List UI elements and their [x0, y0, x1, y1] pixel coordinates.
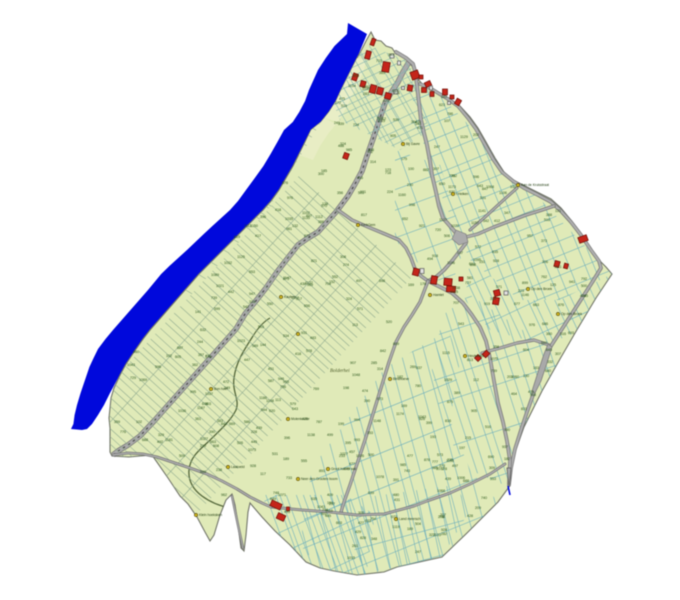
svg-text:Neer den Grooten boom: Neer den Grooten boom — [301, 477, 338, 481]
svg-text:314: 314 — [370, 160, 376, 164]
svg-text:247: 247 — [415, 550, 421, 554]
svg-text:1119: 1119 — [392, 525, 399, 529]
svg-text:792: 792 — [581, 277, 587, 281]
svg-text:427: 427 — [358, 521, 364, 525]
svg-text:102: 102 — [136, 420, 142, 424]
svg-text:1157: 1157 — [471, 221, 479, 225]
svg-text:308: 308 — [340, 255, 346, 259]
svg-text:519: 519 — [341, 104, 347, 108]
svg-text:976: 976 — [529, 323, 535, 327]
svg-text:739: 739 — [491, 369, 497, 373]
svg-text:993: 993 — [354, 438, 360, 442]
svg-text:780: 780 — [415, 384, 421, 388]
svg-text:495: 495 — [284, 510, 290, 514]
svg-text:306: 306 — [542, 260, 548, 264]
svg-text:1129: 1129 — [460, 135, 468, 139]
svg-text:1111: 1111 — [554, 265, 561, 269]
svg-text:506: 506 — [444, 234, 450, 238]
svg-text:169: 169 — [401, 404, 407, 408]
svg-text:Molenkouter: Molenkouter — [291, 417, 311, 421]
svg-text:623: 623 — [439, 103, 445, 107]
svg-text:882: 882 — [423, 168, 429, 172]
svg-text:762: 762 — [541, 275, 547, 279]
svg-text:813: 813 — [467, 358, 473, 362]
svg-text:1048: 1048 — [352, 373, 360, 377]
svg-text:842: 842 — [380, 349, 386, 353]
svg-text:905: 905 — [471, 409, 477, 413]
svg-text:404: 404 — [580, 294, 586, 298]
svg-text:152: 152 — [329, 280, 335, 284]
svg-text:282: 282 — [441, 532, 447, 536]
svg-text:873: 873 — [283, 277, 289, 281]
svg-text:189: 189 — [283, 457, 289, 461]
svg-text:995: 995 — [190, 390, 196, 394]
svg-text:981: 981 — [286, 227, 292, 231]
svg-text:457: 457 — [349, 450, 355, 454]
svg-text:1141: 1141 — [478, 209, 486, 213]
svg-text:244: 244 — [197, 340, 203, 344]
svg-text:112: 112 — [473, 378, 479, 382]
svg-text:1193: 1193 — [446, 459, 454, 463]
svg-text:937: 937 — [502, 445, 508, 449]
svg-text:418: 418 — [275, 208, 281, 212]
svg-text:652: 652 — [402, 217, 408, 221]
svg-text:947: 947 — [249, 292, 255, 296]
svg-text:985: 985 — [346, 148, 352, 152]
svg-text:544: 544 — [261, 408, 267, 412]
svg-text:Heulebeke: Heulebeke — [468, 354, 484, 358]
svg-text:1115: 1115 — [442, 351, 449, 355]
svg-text:314: 314 — [377, 367, 383, 371]
svg-text:477: 477 — [407, 454, 413, 458]
svg-text:739: 739 — [211, 296, 217, 300]
svg-text:769: 769 — [313, 387, 319, 391]
svg-text:285: 285 — [371, 361, 377, 365]
svg-text:Laakveld: Laakveld — [231, 465, 245, 469]
svg-text:182: 182 — [504, 457, 510, 461]
svg-text:178: 178 — [420, 282, 426, 286]
svg-text:509: 509 — [179, 454, 185, 458]
svg-text:1146: 1146 — [521, 293, 529, 297]
svg-text:Op den Broek: Op den Broek — [561, 312, 582, 316]
svg-text:816: 816 — [445, 419, 451, 423]
svg-text:Klein hoeksken: Klein hoeksken — [199, 513, 222, 517]
svg-text:202: 202 — [473, 133, 479, 137]
svg-text:1174: 1174 — [396, 412, 404, 416]
svg-text:357: 357 — [198, 353, 204, 357]
svg-text:1111: 1111 — [244, 224, 251, 228]
svg-text:138: 138 — [322, 202, 328, 206]
svg-text:994: 994 — [354, 418, 360, 422]
svg-text:1160: 1160 — [398, 193, 406, 197]
svg-text:1075: 1075 — [490, 357, 498, 361]
svg-text:373: 373 — [541, 239, 547, 243]
svg-text:324: 324 — [346, 297, 352, 301]
svg-text:1073: 1073 — [248, 448, 256, 452]
svg-text:534: 534 — [283, 334, 289, 338]
svg-text:207: 207 — [440, 513, 446, 517]
svg-text:875: 875 — [447, 400, 453, 404]
svg-text:581: 581 — [467, 276, 473, 280]
svg-text:571: 571 — [357, 307, 363, 311]
svg-text:471: 471 — [417, 126, 423, 130]
svg-text:1043: 1043 — [418, 415, 426, 419]
svg-text:199: 199 — [338, 422, 344, 426]
svg-text:474: 474 — [362, 389, 368, 393]
svg-text:102: 102 — [166, 354, 172, 358]
svg-text:891: 891 — [319, 469, 325, 473]
svg-text:1138: 1138 — [307, 433, 315, 437]
svg-text:740: 740 — [481, 496, 487, 500]
svg-text:113: 113 — [275, 398, 281, 402]
svg-text:1037: 1037 — [205, 392, 213, 396]
svg-text:733: 733 — [449, 174, 455, 178]
svg-text:1198: 1198 — [266, 399, 274, 403]
svg-text:673: 673 — [377, 397, 383, 401]
svg-text:141: 141 — [195, 310, 201, 314]
svg-text:Aan de Kruisstraat: Aan de Kruisstraat — [521, 183, 549, 187]
svg-text:998: 998 — [409, 203, 415, 207]
svg-text:1196: 1196 — [447, 261, 455, 265]
svg-text:356: 356 — [337, 191, 343, 195]
svg-text:359: 359 — [114, 420, 120, 424]
svg-text:107: 107 — [457, 251, 463, 255]
svg-text:608: 608 — [213, 444, 219, 448]
svg-text:464: 464 — [511, 392, 517, 396]
svg-text:488: 488 — [338, 144, 344, 148]
svg-text:663: 663 — [533, 303, 539, 307]
svg-text:1112: 1112 — [315, 215, 322, 219]
svg-text:1035: 1035 — [362, 87, 370, 91]
svg-text:307: 307 — [433, 167, 439, 171]
svg-text:Land meersch: Land meersch — [399, 517, 421, 521]
svg-text:1187: 1187 — [197, 406, 205, 410]
svg-text:100: 100 — [408, 167, 414, 171]
svg-text:887: 887 — [177, 346, 183, 350]
svg-text:539: 539 — [393, 118, 399, 122]
svg-text:428: 428 — [467, 514, 473, 518]
svg-text:1173: 1173 — [448, 185, 456, 189]
svg-text:t Heiken: t Heiken — [456, 192, 469, 196]
svg-text:360: 360 — [546, 332, 552, 336]
svg-text:329: 329 — [158, 433, 164, 437]
svg-text:1043: 1043 — [317, 505, 325, 509]
svg-text:390: 390 — [364, 399, 370, 403]
svg-text:396: 396 — [260, 215, 266, 219]
svg-text:690: 690 — [488, 455, 494, 459]
svg-text:720: 720 — [435, 228, 441, 232]
svg-text:144: 144 — [260, 343, 266, 347]
svg-text:632: 632 — [200, 328, 206, 332]
svg-text:543: 543 — [458, 322, 464, 326]
svg-text:1015: 1015 — [377, 119, 385, 123]
svg-text:727: 727 — [465, 281, 471, 285]
svg-text:472: 472 — [223, 380, 229, 384]
svg-text:274: 274 — [343, 263, 349, 267]
svg-text:1060: 1060 — [511, 375, 519, 379]
svg-text:1036: 1036 — [178, 409, 186, 413]
svg-text:228: 228 — [251, 430, 257, 434]
svg-text:169: 169 — [408, 283, 414, 287]
svg-text:485: 485 — [325, 514, 331, 518]
svg-text:399: 399 — [426, 421, 432, 425]
svg-text:515: 515 — [258, 325, 264, 329]
svg-text:317: 317 — [296, 297, 302, 301]
svg-text:113: 113 — [352, 323, 358, 327]
svg-text:121: 121 — [555, 209, 561, 213]
svg-text:447: 447 — [244, 358, 250, 362]
svg-text:941: 941 — [569, 280, 575, 284]
svg-text:497: 497 — [356, 279, 362, 283]
svg-text:130: 130 — [523, 374, 529, 378]
svg-text:Bolderhei: Bolderhei — [330, 369, 350, 374]
svg-text:653: 653 — [249, 270, 255, 274]
svg-text:1015: 1015 — [347, 556, 355, 560]
svg-text:395: 395 — [345, 441, 351, 445]
svg-text:729: 729 — [130, 376, 136, 380]
svg-text:439: 439 — [445, 477, 451, 481]
svg-text:903: 903 — [205, 402, 211, 406]
svg-text:660: 660 — [541, 341, 547, 345]
svg-text:835: 835 — [492, 250, 498, 254]
svg-text:431: 431 — [394, 498, 400, 502]
svg-text:603: 603 — [336, 521, 342, 525]
svg-text:531: 531 — [272, 452, 278, 456]
svg-text:418: 418 — [295, 352, 301, 356]
svg-text:198: 198 — [343, 386, 349, 390]
svg-text:955: 955 — [353, 74, 359, 78]
svg-text:656: 656 — [304, 304, 310, 308]
svg-text:163: 163 — [533, 366, 539, 370]
svg-text:475: 475 — [339, 97, 345, 101]
svg-text:707: 707 — [453, 301, 459, 305]
svg-text:985: 985 — [400, 463, 406, 467]
svg-text:1023: 1023 — [237, 339, 245, 343]
svg-text:223: 223 — [518, 289, 524, 293]
svg-text:197: 197 — [459, 446, 465, 450]
svg-text:516: 516 — [544, 218, 550, 222]
svg-text:787: 787 — [316, 420, 322, 424]
svg-text:322: 322 — [429, 533, 435, 537]
svg-text:1015: 1015 — [450, 290, 458, 294]
svg-text:1070: 1070 — [451, 224, 459, 228]
svg-text:342: 342 — [441, 95, 447, 99]
svg-text:599: 599 — [214, 307, 220, 311]
svg-text:553: 553 — [490, 477, 496, 481]
svg-text:905: 905 — [390, 134, 396, 138]
svg-text:680: 680 — [545, 369, 551, 373]
svg-text:1027: 1027 — [340, 452, 348, 456]
svg-text:686: 686 — [542, 322, 548, 326]
svg-text:957: 957 — [527, 234, 533, 238]
svg-text:KerkGem: KerkGem — [361, 223, 375, 227]
svg-text:869: 869 — [393, 342, 399, 346]
svg-text:230: 230 — [407, 183, 413, 187]
svg-text:902: 902 — [367, 150, 373, 154]
svg-text:777: 777 — [432, 460, 438, 464]
svg-text:639: 639 — [368, 491, 374, 495]
svg-text:576: 576 — [282, 181, 288, 185]
svg-text:688: 688 — [142, 438, 148, 442]
svg-text:724: 724 — [353, 123, 359, 127]
svg-text:1043: 1043 — [127, 363, 135, 367]
svg-text:1132: 1132 — [305, 281, 313, 285]
svg-text:572: 572 — [475, 245, 481, 249]
svg-text:650: 650 — [439, 182, 445, 186]
svg-text:396: 396 — [284, 436, 290, 440]
svg-text:297: 297 — [329, 502, 335, 506]
svg-text:176: 176 — [205, 355, 211, 359]
svg-text:871: 871 — [304, 234, 310, 238]
svg-text:555: 555 — [301, 459, 307, 463]
svg-text:1069: 1069 — [139, 378, 147, 382]
svg-text:499: 499 — [327, 433, 333, 437]
svg-text:Hamlet: Hamlet — [433, 293, 444, 297]
svg-text:786: 786 — [447, 112, 453, 116]
svg-text:210: 210 — [200, 444, 206, 448]
svg-text:117: 117 — [260, 472, 266, 476]
svg-text:342: 342 — [483, 219, 489, 223]
svg-text:845: 845 — [546, 348, 552, 352]
svg-text:756: 756 — [280, 385, 286, 389]
svg-text:247: 247 — [434, 145, 440, 149]
svg-text:928: 928 — [493, 259, 499, 263]
svg-text:1106: 1106 — [499, 191, 507, 195]
svg-text:261: 261 — [352, 544, 358, 548]
svg-text:300: 300 — [318, 172, 324, 176]
svg-text:1072: 1072 — [436, 467, 444, 471]
svg-text:175: 175 — [401, 157, 407, 161]
svg-text:339: 339 — [338, 122, 344, 126]
svg-text:1137: 1137 — [439, 218, 447, 222]
svg-text:899: 899 — [522, 281, 528, 285]
svg-text:1135: 1135 — [302, 216, 310, 220]
svg-text:Bon hoef: Bon hoef — [214, 387, 228, 391]
svg-text:314: 314 — [490, 297, 496, 301]
svg-text:876: 876 — [558, 303, 564, 307]
svg-text:960: 960 — [133, 350, 139, 354]
svg-text:568: 568 — [530, 393, 536, 397]
svg-text:847: 847 — [482, 187, 488, 191]
svg-text:503: 503 — [358, 191, 364, 195]
svg-text:586: 586 — [244, 420, 250, 424]
svg-text:610: 610 — [469, 262, 475, 266]
svg-text:542: 542 — [243, 305, 249, 309]
svg-text:390: 390 — [209, 430, 215, 434]
svg-text:209: 209 — [475, 506, 481, 510]
svg-text:698: 698 — [379, 279, 385, 283]
svg-text:Op den Broek: Op den Broek — [531, 287, 552, 291]
svg-text:347: 347 — [504, 211, 510, 215]
svg-text:442: 442 — [228, 290, 234, 294]
svg-text:492: 492 — [157, 440, 163, 444]
svg-text:309: 309 — [489, 466, 495, 470]
svg-text:663: 663 — [210, 440, 216, 444]
svg-text:132: 132 — [292, 224, 298, 228]
svg-text:500: 500 — [581, 284, 587, 288]
svg-text:343: 343 — [388, 53, 394, 57]
svg-text:1026: 1026 — [356, 454, 364, 458]
svg-text:305: 305 — [358, 511, 364, 515]
svg-text:633: 633 — [365, 519, 371, 523]
svg-text:931: 931 — [301, 331, 307, 335]
svg-text:103: 103 — [510, 185, 516, 189]
svg-text:571: 571 — [496, 285, 502, 289]
svg-text:748: 748 — [273, 491, 279, 495]
svg-text:907: 907 — [350, 361, 356, 365]
svg-text:817: 817 — [361, 213, 367, 217]
svg-text:520: 520 — [386, 320, 392, 324]
svg-text:483: 483 — [310, 336, 316, 340]
svg-text:718: 718 — [385, 171, 391, 175]
svg-text:189: 189 — [407, 527, 413, 531]
svg-text:409: 409 — [327, 493, 333, 497]
svg-text:504: 504 — [415, 522, 421, 526]
svg-text:715: 715 — [376, 59, 382, 63]
svg-text:620: 620 — [269, 409, 275, 413]
svg-text:477: 477 — [349, 462, 355, 466]
svg-text:821: 821 — [311, 259, 317, 263]
svg-text:348: 348 — [371, 537, 377, 541]
svg-text:955: 955 — [283, 380, 289, 384]
svg-text:849: 849 — [270, 497, 276, 501]
svg-text:550: 550 — [267, 302, 273, 306]
svg-text:1035: 1035 — [285, 217, 293, 221]
svg-text:828: 828 — [360, 536, 366, 540]
svg-text:215: 215 — [465, 436, 471, 440]
svg-text:332: 332 — [547, 360, 553, 364]
svg-text:Kauters: Kauters — [284, 295, 296, 299]
svg-text:358: 358 — [493, 345, 499, 349]
svg-text:976: 976 — [287, 196, 293, 200]
svg-text:552: 552 — [332, 275, 338, 279]
svg-text:318: 318 — [249, 300, 255, 304]
svg-text:1102: 1102 — [302, 211, 310, 215]
svg-text:531: 531 — [480, 196, 486, 200]
svg-text:688: 688 — [463, 479, 469, 483]
svg-text:844: 844 — [221, 422, 227, 426]
svg-text:Bij Gavre: Bij Gavre — [406, 142, 420, 146]
svg-text:1154: 1154 — [348, 84, 356, 88]
svg-text:721: 721 — [394, 91, 400, 95]
svg-text:412: 412 — [494, 219, 500, 223]
svg-text:1068: 1068 — [437, 489, 445, 493]
svg-text:629: 629 — [383, 99, 389, 103]
svg-text:573: 573 — [437, 453, 443, 457]
svg-text:389: 389 — [454, 391, 460, 395]
svg-text:388: 388 — [546, 213, 552, 217]
svg-text:1078: 1078 — [376, 475, 384, 479]
svg-text:224: 224 — [387, 190, 393, 194]
svg-text:677: 677 — [514, 302, 520, 306]
svg-text:962: 962 — [221, 493, 227, 497]
svg-text:589: 589 — [252, 344, 258, 348]
svg-text:587: 587 — [268, 379, 274, 383]
svg-text:990: 990 — [504, 428, 510, 432]
svg-text:919: 919 — [484, 302, 490, 306]
svg-text:366: 366 — [318, 220, 324, 224]
svg-text:193: 193 — [430, 435, 436, 439]
svg-text:928: 928 — [441, 528, 447, 532]
svg-text:928: 928 — [250, 464, 256, 468]
svg-text:516: 516 — [485, 425, 491, 429]
svg-text:1021: 1021 — [216, 284, 224, 288]
svg-text:1029: 1029 — [444, 378, 452, 382]
svg-text:480: 480 — [393, 493, 399, 497]
svg-text:635: 635 — [311, 497, 317, 501]
svg-text:921: 921 — [419, 224, 425, 228]
svg-text:643: 643 — [292, 407, 298, 411]
